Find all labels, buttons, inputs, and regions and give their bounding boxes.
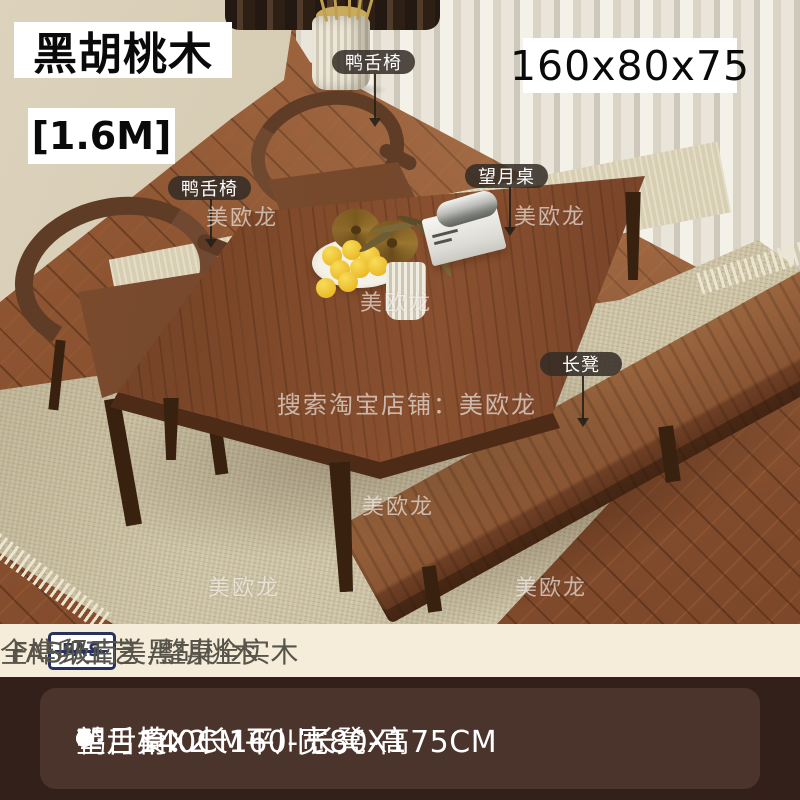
dimensions-badge: 160x80x75	[523, 38, 737, 93]
brand-watermark: 美欧龙	[208, 570, 280, 602]
lemon	[368, 256, 388, 276]
info-bar: FAS FAS级南美黑胡桃木 全榫卯工艺 /整桌全实木	[0, 624, 800, 677]
brand-watermark: 美欧龙	[362, 489, 434, 521]
callout-arrowhead	[205, 239, 217, 248]
brand-watermark: 美欧龙	[514, 199, 586, 231]
callout-arrowhead	[369, 118, 381, 127]
brand-watermark: 美欧龙	[206, 200, 278, 232]
lemon	[316, 278, 336, 298]
callout-arrow	[374, 74, 376, 120]
grass-blade	[348, 0, 351, 18]
product-image: 黑胡桃木 [1.6M] 160x80x75 鸭舌椅 鸭舌椅 望月桌 长凳 美欧龙…	[0, 0, 800, 800]
callout-arrow	[509, 187, 511, 229]
length-badge: [1.6M]	[28, 108, 175, 164]
callout-chair-top: 鸭舌椅	[332, 50, 415, 74]
material-badge: 黑胡桃木	[14, 22, 232, 78]
brand-watermark: 美欧龙	[515, 570, 587, 602]
spec-card: 望月桌：长160-宽80-高75CM 鸭舌椅X2 140CM平川长凳X1	[40, 688, 760, 789]
callout-arrow	[582, 376, 584, 420]
callout-chair-left: 鸭舌椅	[168, 176, 251, 200]
callout-arrowhead	[577, 418, 589, 427]
callout-table: 望月桌	[465, 164, 548, 188]
shop-search-watermark: 搜索淘宝店铺：美欧龙	[277, 385, 537, 420]
spec-bench-size: 140CM平川长凳X1	[138, 717, 407, 761]
lemon	[338, 272, 358, 292]
brand-watermark: 美欧龙	[360, 285, 432, 317]
callout-bench: 长凳	[540, 352, 622, 376]
craft-text: 全榫卯工艺 /整桌全实木	[0, 631, 298, 671]
spec-panel: 望月桌：长160-宽80-高75CM 鸭舌椅X2 140CM平川长凳X1	[0, 677, 800, 800]
